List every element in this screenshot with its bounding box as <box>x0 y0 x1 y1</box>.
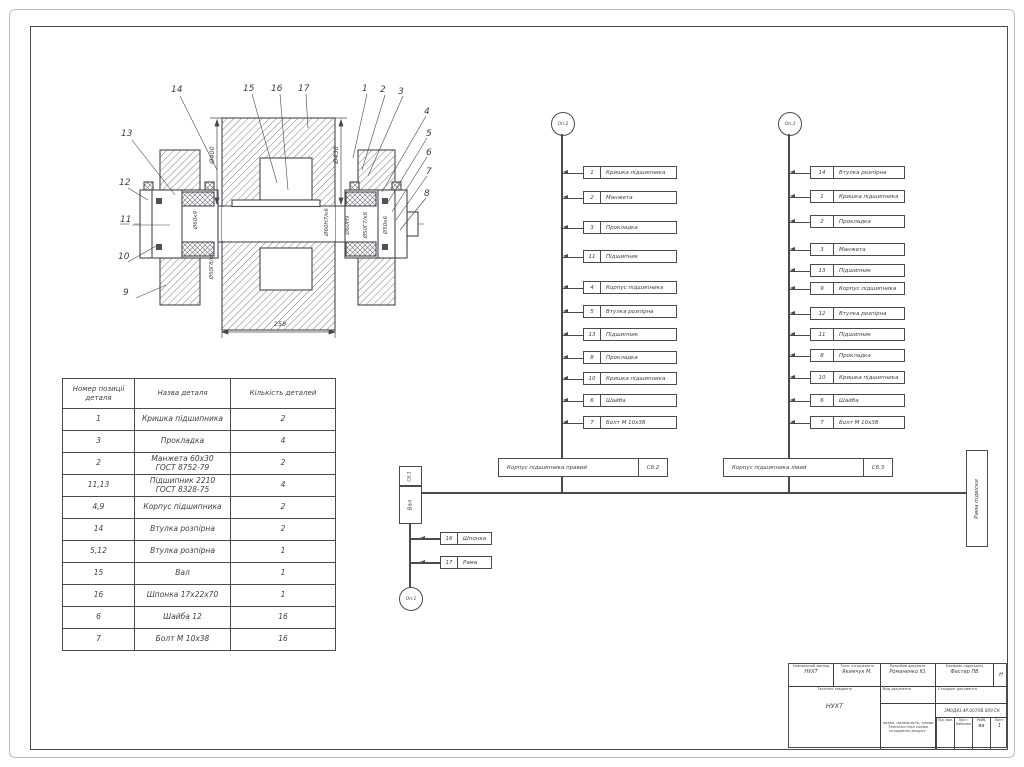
part-label-cell: Корпус підшипника <box>834 283 904 294</box>
part-position: 2 <box>63 453 135 474</box>
part-qty: 4 <box>231 475 335 496</box>
part-label-cell: Кришка підшипника <box>834 191 904 202</box>
fit-dimension-label: Ø50Г7/к6 <box>363 212 369 239</box>
tb-value: НУХТ <box>804 669 817 675</box>
node-label: Оп.3 <box>785 122 796 127</box>
scheme-part-box: 17 Рама <box>440 556 492 569</box>
tb-mini-cell: Лист. 1 <box>990 718 1008 749</box>
tb-org-cell: Навчальний заклад НУХТ <box>789 664 834 687</box>
part-number-cell: 3 <box>584 222 601 233</box>
scheme-part-box: 10 Кришка підшипника <box>810 371 905 384</box>
header-name: Назва деталя <box>135 379 231 408</box>
header-qty: Кількість деталей <box>231 379 335 408</box>
part-qty: 2 <box>231 519 335 540</box>
part-callout-number: 5 <box>426 130 432 139</box>
tb-mini-label: Лист. Кабален <box>955 718 972 727</box>
fit-dimension-label: Ø50к6 <box>383 216 389 234</box>
part-label-cell: Болт М 10х38 <box>601 417 676 428</box>
tb-supervisor-cell: Керівник підрозділу Фастир ПВ <box>936 664 994 687</box>
part-name: Шайба 12 <box>135 607 231 628</box>
tb-value: Якимчук М. <box>842 669 872 675</box>
part-number-cell: 2 <box>811 216 834 227</box>
part-qty: 2 <box>231 409 335 430</box>
part-name: Прокладка <box>135 431 231 452</box>
part-name: Втулка розпірна <box>135 541 231 562</box>
scheme-part-box: 16 Шпонка <box>440 532 492 545</box>
tb-mini-row: Під. вал. Лист. Кабален Рейб. ва Лист. 1 <box>936 718 1008 749</box>
scheme-part-box: 2 Манжета <box>583 191 677 204</box>
part-number-cell: 12 <box>811 308 834 319</box>
part-number-cell: 13 <box>811 265 834 276</box>
drawing-sheet: 14 15 16 17 1 2 3 4 5 6 7 8 13 12 11 <box>0 0 1024 767</box>
part-number-cell: 3 <box>811 244 834 255</box>
fit-dimension-label: Ø50Г8/к6 <box>209 253 215 280</box>
parts-table-row: 3 Прокладка 4 <box>63 430 335 452</box>
part-label-cell: Кришка підшипника <box>601 373 676 384</box>
part-label-cell: Підшипник <box>834 265 904 276</box>
part-number-cell: 7 <box>811 417 834 428</box>
scheme-part-box: 7 Болт М 10х38 <box>583 416 677 429</box>
part-position: 1 <box>63 409 135 430</box>
part-number-cell: 1 <box>584 167 601 178</box>
part-number-cell: 9 <box>811 283 834 294</box>
base-part-box: Вал <box>399 486 422 524</box>
node-label: Оп.1 <box>406 597 417 602</box>
dimension-left: Ø400 <box>208 146 216 164</box>
part-label-cell: Прокладка <box>601 352 676 363</box>
part-label-cell: Шайба <box>834 395 904 406</box>
dimension-right: Ø430 <box>332 146 340 164</box>
part-name: Вал <box>135 563 231 584</box>
part-position: 3 <box>63 431 135 452</box>
part-name: Болт М 10х38 <box>135 629 231 650</box>
part-position: 4,9 <box>63 497 135 518</box>
chain2-line-lower <box>788 477 790 493</box>
part-label-cell: Прокладка <box>601 222 676 233</box>
part-label-cell: Кришка підшипника <box>601 167 676 178</box>
part-label-cell: Кришка підшипника <box>834 372 904 383</box>
part-number-cell: 6 <box>584 395 601 406</box>
part-label-cell: Манжета <box>601 192 676 203</box>
subassembly-left-housing: Корпус підшипника лівий Сб.3 <box>723 458 893 477</box>
part-number-cell: 10 <box>584 373 601 384</box>
part-label-cell: Підшипник <box>601 251 676 262</box>
parts-table-header: Номер позиції деталя Назва деталя Кількі… <box>63 379 335 408</box>
part-callout-number: 7 <box>426 168 432 177</box>
fit-dimension-label: Ø60Н9 <box>345 216 351 235</box>
part-label-cell: Шайба <box>601 395 676 406</box>
part-callout-number: 2 <box>380 86 386 95</box>
scheme-part-box: 13 Підшипник <box>810 264 905 277</box>
tb-label: Технічне завдання <box>817 687 852 692</box>
tb-label: Вид документа <box>881 687 911 692</box>
part-number-cell: 4 <box>584 282 601 293</box>
tb-value: Фастир ПВ <box>950 669 978 675</box>
part-label-cell: Прокладка <box>834 216 904 227</box>
part-callout-number: 14 <box>171 86 182 95</box>
part-label-cell: Прокладка <box>834 350 904 361</box>
tb-value: Романенко Ю. <box>889 669 926 675</box>
part-number-cell: 5 <box>584 306 601 317</box>
part-qty: 2 <box>231 497 335 518</box>
part-name: Підшипник 2210 ГОСТ 8328-75 <box>135 475 231 496</box>
part-number-cell: 14 <box>811 167 834 178</box>
part-name: Кришка підшипника <box>135 409 231 430</box>
part-number-cell: 11 <box>584 251 601 262</box>
part-callout-number: 13 <box>121 130 132 139</box>
part-callout-number: 12 <box>119 179 130 188</box>
header-position: Номер позиції деталя <box>63 379 135 408</box>
part-callout-number: 4 <box>424 108 430 117</box>
parts-table-row: 14 Втулка розпірна 2 <box>63 518 335 540</box>
part-callout-number: 1 <box>362 85 368 94</box>
part-callout-number: 3 <box>398 88 404 97</box>
part-number-cell: 8 <box>584 352 601 363</box>
tb-mini-cell: Під. вал. <box>936 718 954 749</box>
part-name: Манжета 60х30 ГОСТ 8752-79 <box>135 453 231 474</box>
part-label-cell: Корпус підшипника <box>601 282 676 293</box>
part-name: Корпус підшипника <box>135 497 231 518</box>
scheme-part-box: 6 Шайба <box>810 394 905 407</box>
parts-table-row: 16 Шпонка 17х22х70 1 <box>63 584 335 606</box>
parts-table-row: 11,13 Підшипник 2210 ГОСТ 8328-75 4 <box>63 474 335 496</box>
chain2-line <box>788 134 790 458</box>
frame-assembly-box: Рама підвіски <box>966 450 988 547</box>
scheme-part-box: 2 Прокладка <box>810 215 905 228</box>
base-header-label: Сб.1 <box>408 471 413 481</box>
part-number-cell: 17 <box>441 557 458 568</box>
scheme-node-3: Оп.3 <box>778 112 802 136</box>
scheme-node-1: Оп.1 <box>399 587 423 611</box>
part-qty: 16 <box>231 629 335 650</box>
part-number-cell: 6 <box>811 395 834 406</box>
parts-table-row: 4,9 Корпус підшипника 2 <box>63 496 335 518</box>
tb-mini-cell: Лист. Кабален <box>954 718 972 749</box>
part-callout-number: 15 <box>243 85 254 94</box>
tb-task-cell: Технічне завдання НУХТ <box>789 687 881 749</box>
part-qty: 16 <box>231 607 335 628</box>
fit-dimension-label: Ø60к9 <box>193 211 199 229</box>
parts-table: Номер позиції деталя Назва деталя Кількі… <box>62 378 336 651</box>
part-name: Шпонка 17х22х70 <box>135 585 231 606</box>
tb-label: Стандарт документа <box>936 687 977 692</box>
subassembly-right-housing: Корпус підшипника правий Сб.2 <box>498 458 668 477</box>
part-label-cell: Втулка розпірна <box>834 308 904 319</box>
part-qty: 2 <box>231 453 335 474</box>
node-label: Оп.2 <box>558 122 569 127</box>
document-code: ЗМ0Д43.4Р.007ЛВ.009.СК <box>944 708 1000 713</box>
part-position: 16 <box>63 585 135 606</box>
scheme-part-box: 6 Шайба <box>583 394 677 407</box>
part-number-cell: 13 <box>584 329 601 340</box>
part-callout-number: 10 <box>118 253 129 262</box>
scheme-part-box: 10 Кришка підшипника <box>583 372 677 385</box>
part-label-cell: Рама <box>458 557 491 568</box>
part-number-cell: 16 <box>441 533 458 544</box>
scheme-part-box: 11 Підшипник <box>810 328 905 341</box>
part-position: 7 <box>63 629 135 650</box>
part-label-cell: Підшипник <box>601 329 676 340</box>
frame-assembly-label: Рама підвіски <box>974 479 980 519</box>
part-callout-number: 17 <box>298 85 309 94</box>
part-number-cell: 11 <box>811 329 834 340</box>
part-qty: 1 <box>231 541 335 562</box>
part-label-cell: Втулка розпірна <box>834 167 904 178</box>
part-label-cell: Втулка розпірна <box>601 306 676 317</box>
tb-corner-cell: Н <box>994 664 1008 687</box>
scheme-part-box: 12 Втулка розпірна <box>810 307 905 320</box>
part-position: 14 <box>63 519 135 540</box>
tb-mini-label: Під. вал. <box>938 718 954 723</box>
part-label-cell: Болт М 10х38 <box>834 417 904 428</box>
part-name: Втулка розпірна <box>135 519 231 540</box>
subassembly-code: Сб.2 <box>638 459 667 476</box>
base-line <box>409 524 411 587</box>
part-label-cell: Манжета <box>834 244 904 255</box>
part-callout-number: 6 <box>426 149 432 158</box>
parts-table-row: 5,12 Втулка розпірна 1 <box>63 540 335 562</box>
fit-dimension-label: Ø60Н7/к6 <box>324 208 330 236</box>
parts-table-row: 1 Кришка підшипника 2 <box>63 408 335 430</box>
subassembly-label: Корпус підшипника лівий <box>724 459 863 476</box>
tb-code-cell: ЗМ0Д43.4Р.007ЛВ.009.СК <box>936 704 1008 718</box>
scheme-part-box: 8 Прокладка <box>583 351 677 364</box>
part-position: 5,12 <box>63 541 135 562</box>
part-number-cell: 8 <box>811 350 834 361</box>
part-callout-number: 16 <box>271 85 282 94</box>
part-label-cell: Шпонка <box>458 533 491 544</box>
part-position: 6 <box>63 607 135 628</box>
scheme-part-box: 11 Підшипник <box>583 250 677 263</box>
tb-author-cell: Розробив документ Романенко Ю. <box>881 664 936 687</box>
part-position: 15 <box>63 563 135 584</box>
scheme-part-box: 5 Втулка розпірна <box>583 305 677 318</box>
tb-org-name: НУХТ <box>826 702 843 710</box>
part-number-cell: 1 <box>811 191 834 202</box>
dimension-bottom: 258 <box>274 320 286 328</box>
scheme-part-box: 3 Прокладка <box>583 221 677 234</box>
part-qty: 1 <box>231 585 335 606</box>
base-header-box: Сб.1 <box>399 466 422 486</box>
part-label-cell: Підшипник <box>834 329 904 340</box>
part-qty: 4 <box>231 431 335 452</box>
assembly-cross-section <box>70 70 470 380</box>
scheme-part-box: 8 Прокладка <box>810 349 905 362</box>
part-number-cell: 10 <box>811 372 834 383</box>
tb-mini-cell: Рейб. ва <box>972 718 990 749</box>
tb-value: Н <box>999 672 1003 678</box>
scheme-part-box: 13 Підшипник <box>583 328 677 341</box>
part-qty: 1 <box>231 563 335 584</box>
tb-mini-value: ва <box>978 723 984 729</box>
base-part-label: Вал <box>407 500 413 511</box>
parts-table-row: 2 Манжета 60х30 ГОСТ 8752-79 2 <box>63 452 335 474</box>
chain1-line-lower <box>561 477 563 493</box>
tb-mini-value: 1 <box>998 723 1001 729</box>
chain1-line <box>561 134 563 458</box>
scheme-part-box: 3 Манжета <box>810 243 905 256</box>
scheme-part-box: 1 Кришка підшипника <box>810 190 905 203</box>
parts-table-row: 7 Болт М 10х38 16 <box>63 628 335 650</box>
subassembly-code: Сб.3 <box>863 459 892 476</box>
title-block: Навчальний заклад НУХТ Техн. узгодження … <box>788 663 1007 748</box>
scheme-part-box: 4 Корпус підшипника <box>583 281 677 294</box>
part-callout-number: 9 <box>123 289 129 298</box>
part-callout-number: 11 <box>120 216 131 225</box>
part-number-cell: 7 <box>584 417 601 428</box>
scheme-node-2: Оп.2 <box>551 112 575 136</box>
part-callout-number: 8 <box>424 190 430 199</box>
tb-doctype-cell: Вид документа <box>881 687 936 704</box>
scheme-part-box: 9 Корпус підшипника <box>810 282 905 295</box>
document-title: назва, належність, назви Технологічна сх… <box>883 720 934 734</box>
part-number-cell: 2 <box>584 192 601 203</box>
assembly-bus-line <box>422 492 966 494</box>
parts-table-row: 6 Шайба 12 16 <box>63 606 335 628</box>
scheme-part-box: 1 Кришка підшипника <box>583 166 677 179</box>
tb-approve-cell: Техн. узгодження Якимчук М. <box>834 664 881 687</box>
tb-docname-cell: назва, належність, назви Технологічна сх… <box>881 704 936 749</box>
tb-standard-cell: Стандарт документа <box>936 687 1008 704</box>
subassembly-label: Корпус підшипника правий <box>499 459 638 476</box>
scheme-part-box: 14 Втулка розпірна <box>810 166 905 179</box>
scheme-part-box: 7 Болт М 10х38 <box>810 416 905 429</box>
part-position: 11,13 <box>63 475 135 496</box>
parts-table-row: 15 Вал 1 <box>63 562 335 584</box>
